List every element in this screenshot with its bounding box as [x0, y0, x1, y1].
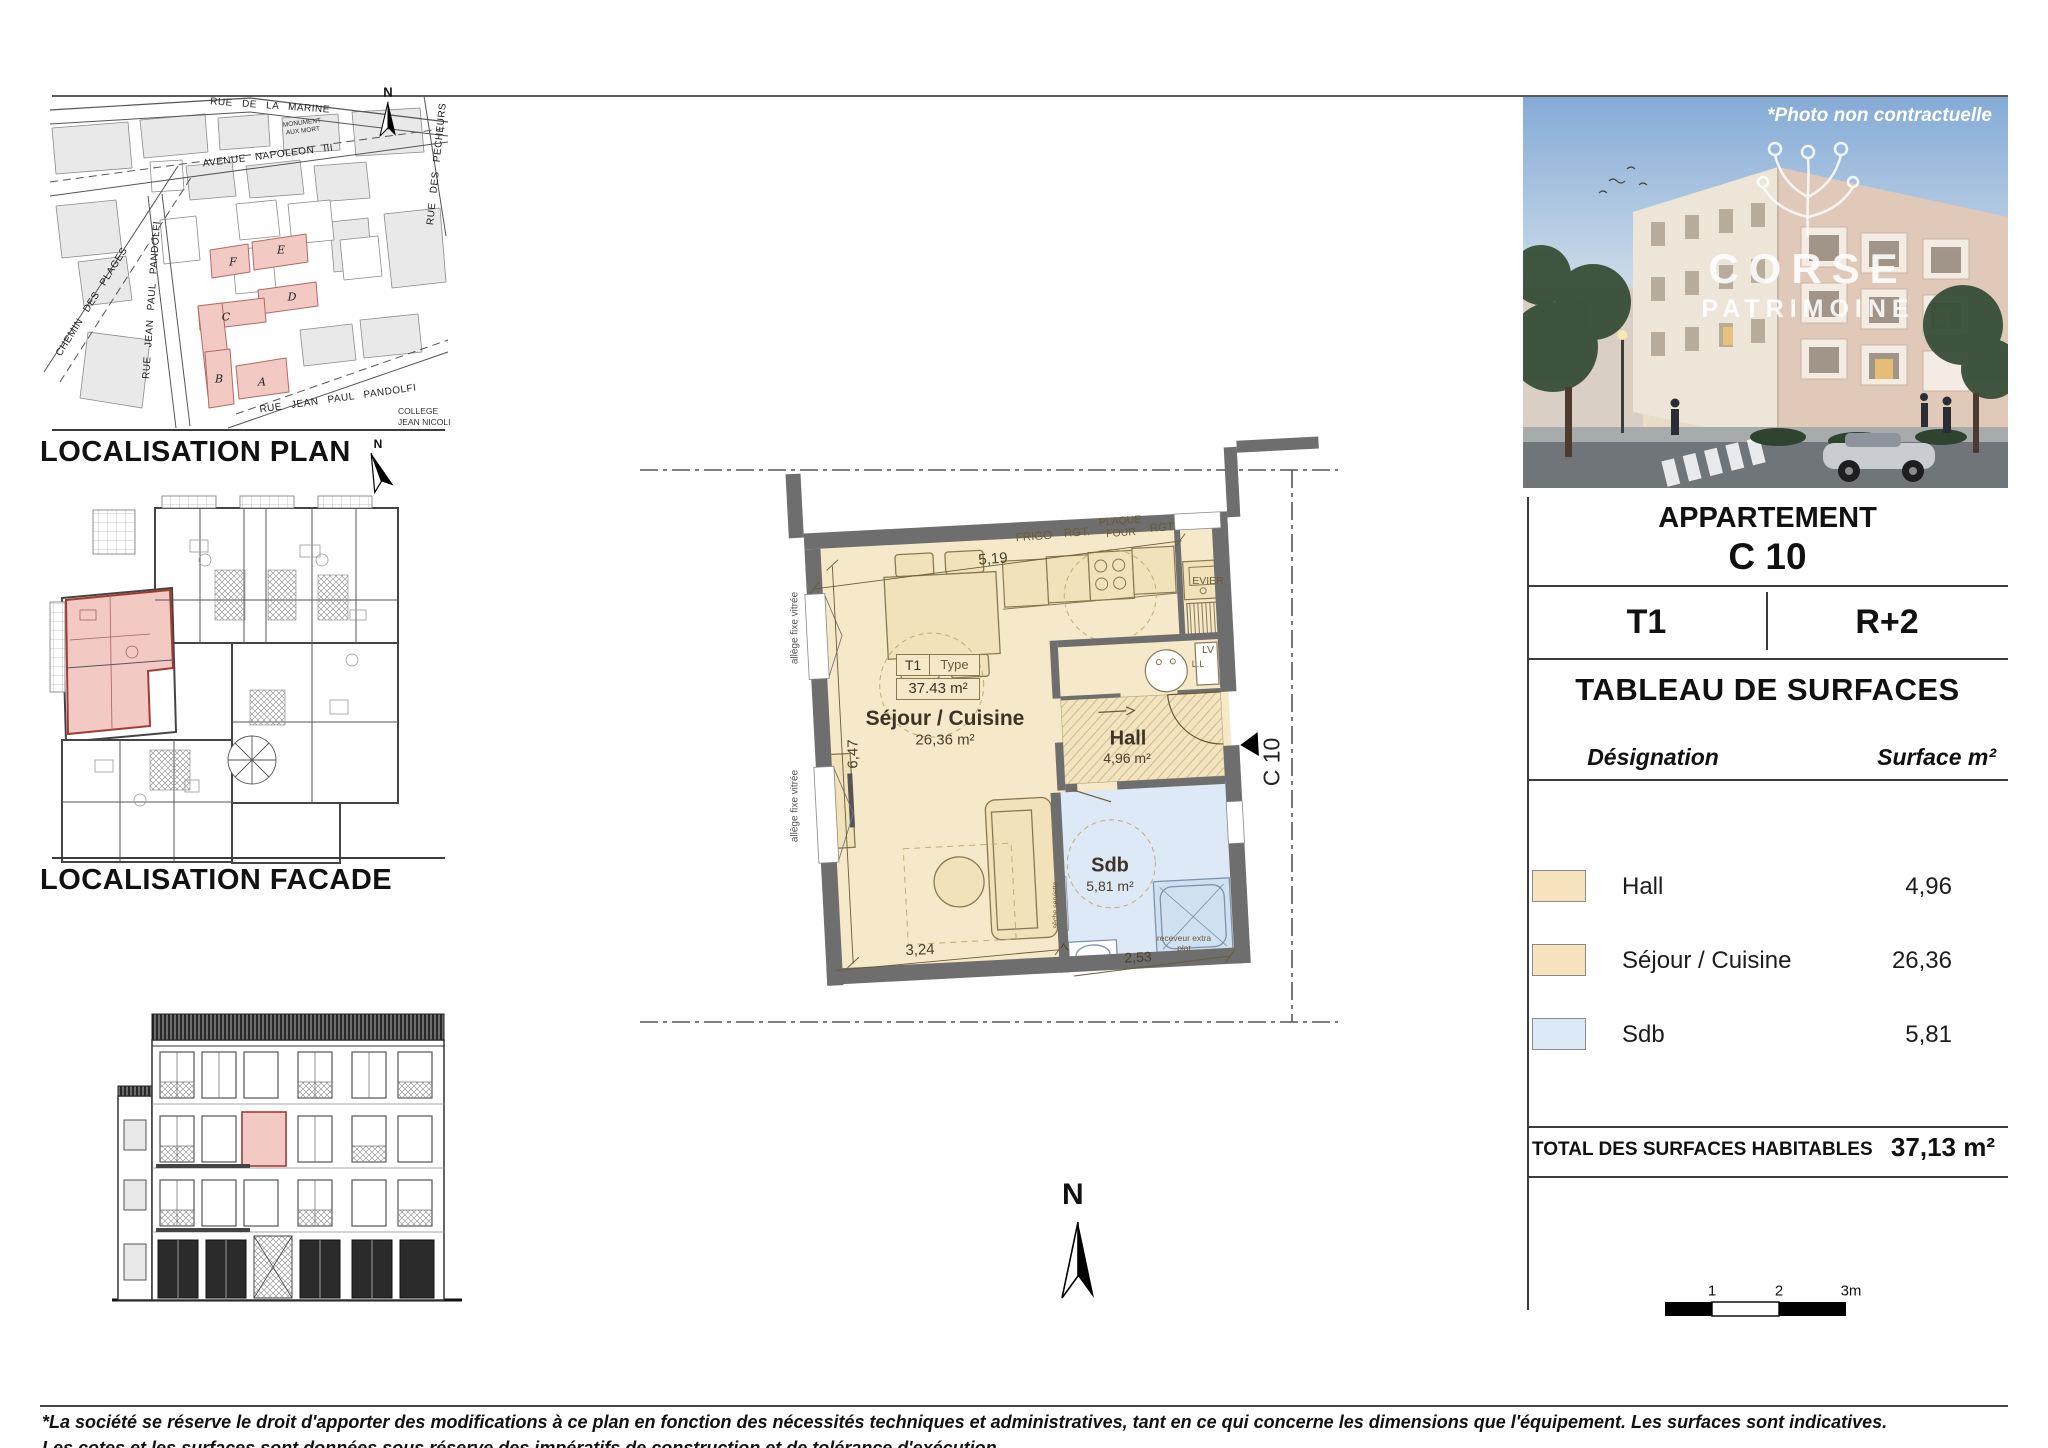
footer-disclaimer-line2: Les cotes et les surfaces sont données s… — [42, 1438, 1002, 1448]
room-area-sdb: 5,81 m² — [1086, 878, 1133, 894]
brand-name-line2: PATRIMOINE — [1701, 295, 1914, 324]
footer-disclaimer-line1: *La société se réserve le droit d'apport… — [42, 1412, 1887, 1433]
row-value-sdb: 5,81 — [1840, 1021, 1952, 1049]
allege-label-2: allège fixe vitrée — [790, 770, 801, 842]
kitchen-label-frigo: FRIGO — [1015, 530, 1052, 545]
site-map-drawing — [44, 96, 448, 428]
row-label-hall: Hall — [1622, 873, 1663, 901]
label-seche-serviette: sèche serviette — [1053, 881, 1060, 928]
building-label-d: D — [288, 291, 297, 304]
total-rule-bottom — [1527, 1176, 2008, 1178]
total-label: TOTAL DES SURFACES HABITABLES — [1532, 1139, 1873, 1161]
column-designation: Désignation — [1540, 744, 1766, 771]
college-label-line2: JEAN NICOLI — [398, 417, 450, 427]
scale-tick-3: 3m — [1841, 1283, 1862, 1300]
scale-tick-2: 2 — [1775, 1283, 1783, 1300]
dim-top: 5,19 — [978, 549, 1008, 568]
kitchen-label-four: FOUR — [1106, 526, 1137, 540]
swatch-hall — [1532, 870, 1586, 902]
table-header-rule — [1527, 779, 2008, 781]
north-arrow — [1062, 1222, 1094, 1298]
kitchen-label-evier: EVIER — [1192, 575, 1224, 587]
building-label-f: F — [229, 256, 237, 269]
building-label-b: B — [215, 373, 223, 386]
dim-sdb: 2,53 — [1124, 948, 1152, 965]
row-label-sejour: Séjour / Cuisine — [1622, 947, 1791, 975]
facade-highlighted-window — [242, 1112, 286, 1166]
type-box: T1 Type — [896, 654, 980, 676]
dim-left: 6,47 — [845, 739, 862, 768]
room-area-sejour: 26,36 m² — [915, 732, 974, 749]
apartment-number: C 10 — [1527, 536, 2008, 578]
row-value-hall: 4,96 — [1840, 873, 1952, 901]
plan-sheet: RUE DE LA MARINE AVENUE NAPOLEON III CHE… — [0, 0, 2048, 1448]
type-box-type: Type — [930, 655, 979, 675]
table-title: TABLEAU DE SURFACES — [1527, 672, 2008, 708]
row-value-sejour: 26,36 — [1840, 947, 1952, 975]
dim-bottom: 3,24 — [905, 941, 935, 959]
building-floorplan-drawing — [50, 496, 398, 863]
allege-label-1: allège fixe vitrée — [790, 592, 801, 664]
panel-rule-1 — [1527, 585, 2008, 587]
brand-name-line1: CORSE — [1708, 245, 1907, 293]
scale-bar — [1665, 1302, 1846, 1316]
building-label-e: E — [277, 244, 285, 257]
kitchen-label-lv: LV — [1202, 644, 1214, 656]
building-label-c: C — [222, 311, 230, 324]
room-area-hall: 4,96 m² — [1103, 750, 1150, 766]
label-lave-linge: L.L — [1192, 659, 1205, 669]
typology-value: T1 — [1527, 594, 1766, 650]
north-letter: N — [1062, 1178, 1084, 1212]
room-label-sdb: Sdb — [1091, 855, 1129, 878]
panel-title: APPARTEMENT — [1527, 502, 2008, 535]
heading-north-arrow — [362, 450, 394, 493]
column-surface: Surface m² — [1828, 744, 1996, 771]
scale-tick-1: 1 — [1708, 1283, 1716, 1300]
photo-disclaimer: *Photo non contractuelle — [1767, 105, 1992, 127]
college-label-line1: COLLEGE — [398, 406, 438, 416]
total-rule-top — [1527, 1126, 2008, 1128]
swatch-sejour — [1532, 944, 1586, 976]
kitchen-label-rgt1: RGT. — [1064, 526, 1091, 540]
map-heading-rule — [52, 429, 445, 431]
row-label-sdb: Sdb — [1622, 1021, 1665, 1049]
kitchen-label-rgt2: RGT. — [1150, 521, 1177, 535]
room-label-sejour: Séjour / Cuisine — [866, 707, 1025, 731]
total-area-box: 37.43 m² — [896, 678, 980, 700]
label-receveur-line1: receveur extra — [1157, 933, 1211, 943]
footer-rule — [40, 1405, 2008, 1407]
map-north-letter: N — [383, 85, 392, 100]
floor-value: R+2 — [1766, 594, 2008, 650]
unit-entrance-marker: C 10 — [1259, 738, 1286, 787]
building-label-a: A — [258, 376, 266, 389]
heading-localisation-facade: LOCALISATION FACADE — [40, 864, 392, 897]
type-box-t1: T1 — [897, 655, 930, 675]
heading-localisation-plan: LOCALISATION PLAN — [40, 436, 351, 469]
total-value: 37,13 m² — [1850, 1132, 1995, 1163]
building-photo: *Photo non contractuelle CORSE PATRIMOIN… — [1523, 97, 2008, 488]
facade-heading-rule — [52, 857, 445, 859]
facade-drawing — [112, 1014, 462, 1300]
panel-rule-2 — [1527, 658, 2008, 660]
heading-north-letter: N — [374, 437, 383, 451]
room-label-hall: Hall — [1110, 728, 1147, 751]
label-receveur-line2: plat — [1177, 943, 1191, 953]
swatch-sdb — [1532, 1018, 1586, 1050]
